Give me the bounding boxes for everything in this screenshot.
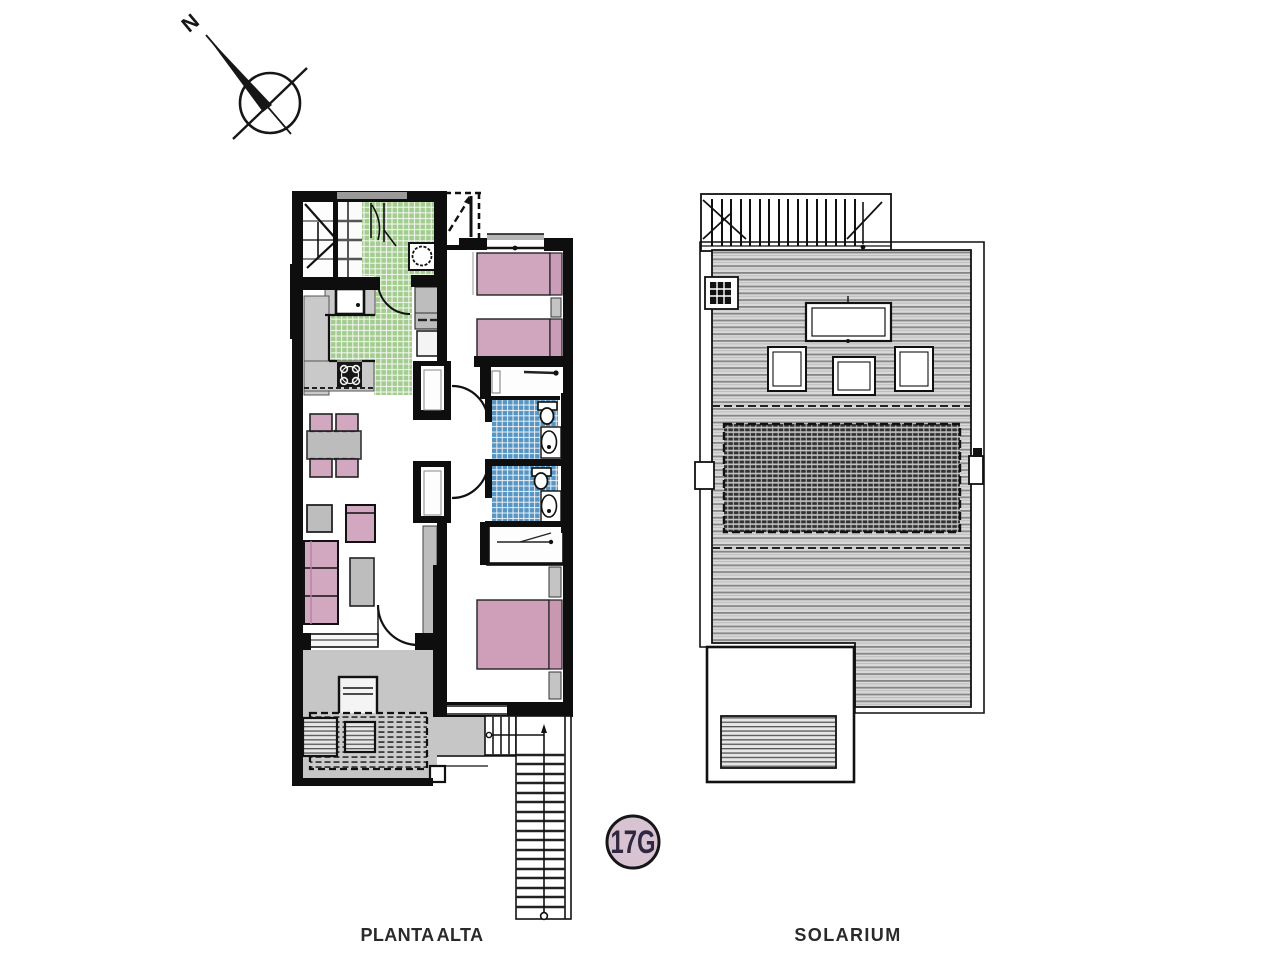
svg-text:PLANTA ALTA: PLANTA ALTA bbox=[360, 925, 483, 945]
svg-text:N: N bbox=[177, 10, 203, 37]
svg-text:SOLARIUM: SOLARIUM bbox=[794, 925, 901, 945]
svg-text:17G: 17G bbox=[611, 824, 656, 860]
